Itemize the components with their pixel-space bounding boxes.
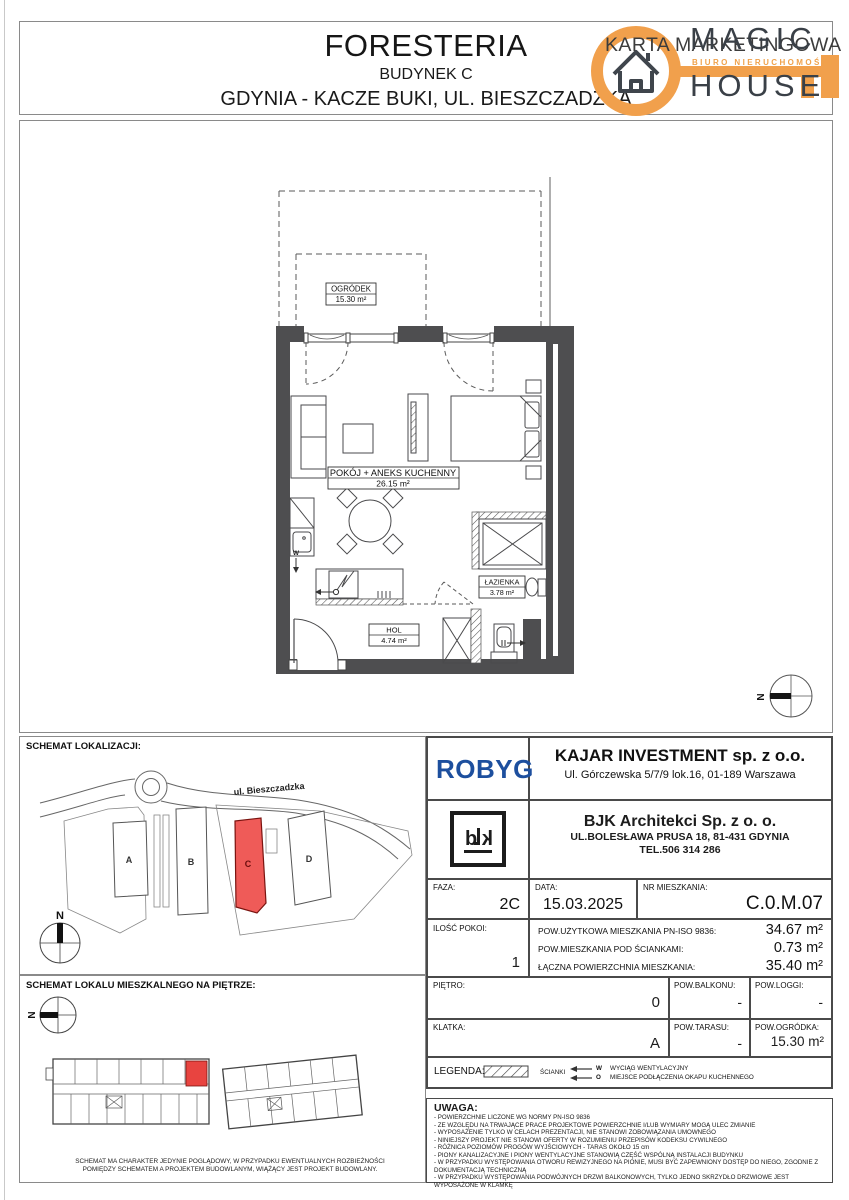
uwaga-note: - WYPOSAŻENIE TYLKO W CELACH PREZENTACJI… [434,1129,825,1137]
house-icon [614,52,658,91]
svg-text:N: N [756,693,767,700]
uwaga-title: UWAGA: [434,1102,825,1114]
nr-label: NR MIESZKANIA: [643,883,707,892]
balkon-label: POW.BALKONU: [674,981,735,990]
data-label: DATA: [535,883,557,892]
svg-text:N: N [56,910,64,922]
room-label-lazienka: ŁAZIENKA 3.78 m² [479,576,525,598]
investor-name: KAJAR INVESTMENT sp. z o.o. [529,746,831,766]
side-table [343,424,373,453]
walls-hatch-icon [483,1065,529,1079]
hood-marker-o [315,589,339,595]
garden-outline [279,191,541,326]
svg-text:4.74 m²: 4.74 m² [381,636,407,645]
klatka-label: KLATKA: [433,1023,465,1032]
uwaga-note: - NINIEJSZY PROJEKT NIE STANOWI OFERTY W… [434,1137,825,1145]
ogrodek-label: POW.OGRÓDKA: [755,1023,819,1032]
pietro-label: PIĘTRO: [433,981,465,990]
area-label: ŁĄCZNA POWIERZCHNIA MIESZKANIA: [538,962,695,972]
divider [428,1018,831,1020]
divider [428,1056,831,1058]
divider [428,799,831,801]
site-compass-icon: N [40,910,80,963]
kitchen-units [290,498,403,599]
uwaga-note: - POWIERZCHNIE LICZONE WG NORMY PN-ISO 9… [434,1114,825,1122]
logo-magic-text: MAGIC [690,22,849,55]
loggia-value: - [751,994,823,1010]
vent-marker-w: W [293,550,300,573]
architect-name: BJK Architekci Sp. z o. o. [529,812,831,831]
sofa [291,396,326,478]
kitchen-partition-hatch [316,599,403,605]
legend-title: LEGENDA: [434,1066,485,1077]
rooms-value: 1 [428,954,520,971]
building-d-label: D [306,854,313,864]
hood-arrow-icon [570,1074,592,1082]
klatka-value: A [428,1035,660,1052]
svg-text:3.78 m²: 3.78 m² [490,588,515,597]
faza-label: FAZA: [433,883,455,892]
uwaga-note: - RÓŻNICA POZIOMÓW PROGÓW WYJŚCIOWYCH - … [434,1144,825,1152]
bathroom-partition-hatch [476,512,546,519]
logo-tagline: BIURO NIERUCHOMOŚCI [692,57,849,68]
legend-vent-letter: W [596,1065,602,1072]
area-value: 34.67 m² [766,922,823,938]
area-value: 35.40 m² [766,958,823,974]
investor-block: KAJAR INVESTMENT sp. z o.o. Ul. Górczews… [529,746,831,782]
nr-value: C.0.M.07 [638,893,823,915]
floor-schematic-box: SCHEMAT LOKALU MIESZKALNEGO NA PIĘTRZE: … [19,975,426,1183]
floor-plan-svg: W [20,121,832,732]
svg-text:N: N [27,1011,38,1018]
page-edge-line [4,0,5,1200]
svg-text:15.30 m²: 15.30 m² [336,295,367,304]
highlighted-unit [186,1061,207,1086]
loggia-label: POW.LOGGI: [755,981,803,990]
robyg-logo: ROBYG [436,754,534,785]
architect-block: BJK Architekci Sp. z o. o. UL.BOLESŁAWA … [529,812,831,857]
uwaga-box: UWAGA: - POWIERZCHNIE LICZONE WG NORMY P… [426,1098,833,1183]
divider [428,878,831,880]
svg-text:W: W [293,550,300,557]
shaft-partition-hatch [471,609,481,663]
divider [428,918,831,920]
entrance-door [289,619,346,670]
uwaga-note: - W PRZYPADKU WYSTĘPOWANIA PODWÓJNYCH DR… [434,1174,825,1189]
taras-value: - [670,1035,742,1051]
taras-label: POW.TARASU: [674,1023,729,1032]
area-label: POW.MIESZKANIA POD ŚCIANKAMI: [538,944,683,954]
vent-arrow-icon [570,1065,592,1073]
door-swing-arcs [306,342,493,391]
investor-address: Ul. Górczewska 5/7/9 lok.16, 01-189 Wars… [529,768,831,782]
floor-plan-box: W [19,120,833,733]
bathtub [479,519,546,569]
bathroom-partition-hatch [472,512,479,569]
marketing-card-page: { "header": { "project": "FORESTERIA", "… [0,0,849,1200]
plan-compass-icon: N [756,675,812,717]
architect-phone: TEL.506 314 286 [529,844,831,857]
uwaga-note: - PIONY KANALIZACYJNE I PIONY WENTYLACYJ… [434,1152,825,1160]
hall-partition-dashed [403,582,473,604]
legend-hood-label: MIEJSCE PODŁĄCZENIA OKAPU KUCHENNEGO [610,1074,754,1081]
bjk-logo-icon: b k [450,811,506,867]
window [443,326,494,343]
dining-table [337,488,403,554]
faza-value: 2C [428,896,520,914]
window [304,326,398,343]
building-a-label: A [126,855,133,865]
floor-schematic-svg: N [20,976,425,1182]
svg-text:OGRÓDEK: OGRÓDEK [331,285,372,294]
roads [40,771,410,859]
architect-address: UL.BOLESŁAWA PRUSA 18, 81-431 GDYNIA [529,831,831,844]
area-value: 0.73 m² [774,940,823,956]
svg-text:k: k [481,828,493,850]
svg-text:HOL: HOL [386,626,401,635]
location-schematic-box: SCHEMAT LOKALIZACJI: A B C D [19,736,426,975]
floor-building-2 [223,1055,363,1129]
floor-compass-icon: N [27,997,76,1033]
wall-slot [553,344,558,656]
building-c-label: C [245,859,252,869]
bed [451,380,541,479]
shaft [443,618,471,663]
data-value: 15.03.2025 [530,896,636,914]
info-table: ROBYG KAJAR INVESTMENT sp. z o.o. Ul. Gó… [426,736,833,1089]
legend-hood-letter: O [596,1074,601,1081]
uwaga-note: - ZE WZGLĘDU NA TRWAJĄCE PRACE PROJEKTOW… [434,1122,825,1130]
svg-text:26.15 m²: 26.15 m² [376,479,410,489]
uwaga-note: - W PRZYPADKU WYSTĘPOWANIA OTWORU REWIZY… [434,1159,825,1174]
site-plan-svg: A B C D ul. Bieszczadzka N [20,737,425,974]
street-label: ul. Bieszczadzka [233,781,306,797]
floor-building-1 [46,1059,209,1124]
rooms-label: ILOŚĆ POKOI: [433,924,487,933]
pietro-value: 0 [428,994,660,1011]
walls [276,326,574,674]
magic-house-wordmark: MAGIC BIURO NIERUCHOMOŚCI HOUSE [690,22,849,102]
svg-text:ŁAZIENKA: ŁAZIENKA [485,578,520,587]
divider [428,976,831,978]
svg-text:POKÓJ + ANEKS KUCHENNY: POKÓJ + ANEKS KUCHENNY [330,468,456,478]
room-label-pokoj: POKÓJ + ANEKS KUCHENNY 26.15 m² [328,467,459,489]
area-label: POW.UŻYTKOWA MIESZKANIA PN-ISO 9836: [538,926,716,936]
header-box: FORESTERIA BUDYNEK C GDYNIA - KACZE BUKI… [19,21,833,115]
toilet [526,578,546,596]
svg-text:b: b [465,828,477,850]
legend-walls-label: ŚCIANKI [540,1069,565,1076]
legend-vent-label: WYCIĄG WENTYLACYJNY [610,1065,688,1072]
room-label-ogrodek: OGRÓDEK 15.30 m² [326,283,376,305]
tv-cabinet [408,394,428,461]
ogrodek-value: 15.30 m² [746,1034,824,1049]
floor-schematic-disclaimer: SCHEMAT MA CHARAKTER JEDYNIE POGLĄDOWY, … [70,1158,390,1174]
balkon-value: - [670,994,742,1010]
building-b-label: B [188,857,195,867]
logo-house-text: HOUSE [690,69,849,102]
room-label-hol: HOL 4.74 m² [369,624,419,646]
